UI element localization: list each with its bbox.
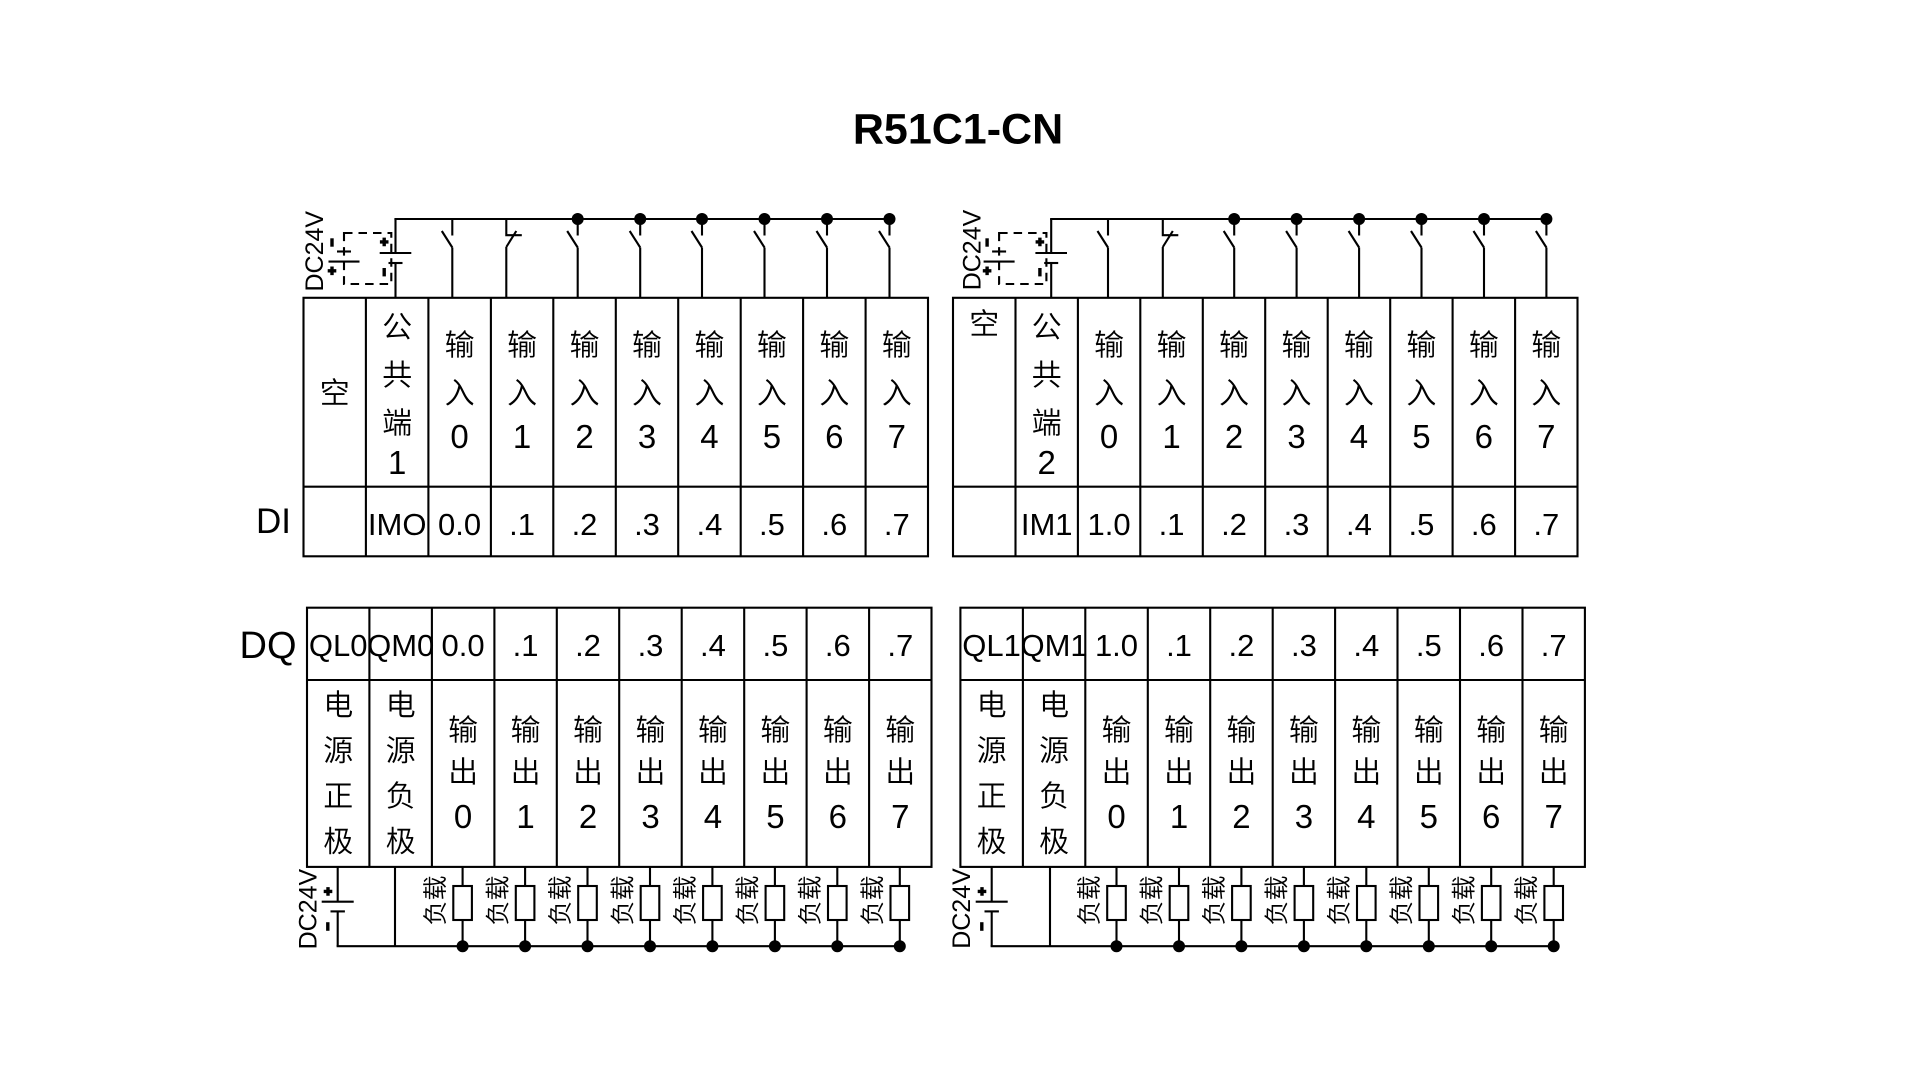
svg-text:6: 6 bbox=[825, 418, 843, 455]
svg-text:0.0: 0.0 bbox=[442, 628, 485, 663]
svg-text:DQ: DQ bbox=[240, 625, 297, 667]
svg-text:R51C1-CN: R51C1-CN bbox=[853, 106, 1063, 154]
svg-text:1.0: 1.0 bbox=[1088, 507, 1131, 542]
svg-text:3: 3 bbox=[1295, 798, 1313, 835]
svg-text:4: 4 bbox=[700, 418, 718, 455]
svg-text:.4: .4 bbox=[696, 507, 722, 542]
svg-text:3: 3 bbox=[1287, 418, 1305, 455]
svg-text:1: 1 bbox=[388, 444, 406, 481]
svg-text:DC24V: DC24V bbox=[959, 209, 987, 290]
svg-text:6: 6 bbox=[829, 798, 847, 835]
svg-text:QL0: QL0 bbox=[309, 628, 368, 663]
svg-text:7: 7 bbox=[891, 798, 909, 835]
svg-text:4: 4 bbox=[1357, 798, 1375, 835]
svg-text:0: 0 bbox=[450, 418, 468, 455]
svg-text:.7: .7 bbox=[1533, 507, 1559, 542]
svg-text:DC24V: DC24V bbox=[301, 211, 329, 292]
svg-text:DC24V: DC24V bbox=[294, 868, 322, 949]
svg-text:.6: .6 bbox=[1478, 628, 1504, 663]
svg-text:.4: .4 bbox=[1353, 628, 1379, 663]
svg-text:QM0: QM0 bbox=[367, 628, 434, 663]
svg-text:.5: .5 bbox=[1408, 507, 1434, 542]
svg-text:1: 1 bbox=[1162, 418, 1180, 455]
svg-text:5: 5 bbox=[766, 798, 784, 835]
svg-text:2: 2 bbox=[1225, 418, 1243, 455]
svg-text:.7: .7 bbox=[884, 507, 910, 542]
svg-text:7: 7 bbox=[1545, 798, 1563, 835]
svg-text:.7: .7 bbox=[887, 628, 913, 663]
svg-text:.5: .5 bbox=[759, 507, 785, 542]
svg-text:.2: .2 bbox=[1228, 628, 1254, 663]
svg-text:IM1: IM1 bbox=[1021, 507, 1073, 542]
svg-text:.2: .2 bbox=[572, 507, 598, 542]
svg-text:.1: .1 bbox=[1159, 507, 1185, 542]
svg-text:2: 2 bbox=[1038, 444, 1056, 481]
svg-text:.4: .4 bbox=[700, 628, 726, 663]
svg-text:.2: .2 bbox=[575, 628, 601, 663]
svg-text:.5: .5 bbox=[1416, 628, 1442, 663]
svg-text:1: 1 bbox=[1170, 798, 1188, 835]
svg-text:5: 5 bbox=[1420, 798, 1438, 835]
svg-text:4: 4 bbox=[1350, 418, 1368, 455]
svg-text:.1: .1 bbox=[1166, 628, 1192, 663]
svg-text:6: 6 bbox=[1482, 798, 1500, 835]
svg-text:2: 2 bbox=[579, 798, 597, 835]
svg-text:1: 1 bbox=[516, 798, 534, 835]
svg-text:QL1: QL1 bbox=[962, 628, 1021, 663]
svg-text:7: 7 bbox=[888, 418, 906, 455]
svg-text:0.0: 0.0 bbox=[438, 507, 481, 542]
svg-text:2: 2 bbox=[1232, 798, 1250, 835]
svg-text:.6: .6 bbox=[1471, 507, 1497, 542]
svg-text:3: 3 bbox=[641, 798, 659, 835]
svg-text:1.0: 1.0 bbox=[1095, 628, 1138, 663]
svg-text:QM1: QM1 bbox=[1021, 628, 1088, 663]
svg-text:0: 0 bbox=[1100, 418, 1118, 455]
svg-text:5: 5 bbox=[763, 418, 781, 455]
svg-text:0: 0 bbox=[1107, 798, 1125, 835]
svg-text:5: 5 bbox=[1412, 418, 1430, 455]
svg-text:.6: .6 bbox=[825, 628, 851, 663]
svg-text:3: 3 bbox=[638, 418, 656, 455]
svg-text:7: 7 bbox=[1537, 418, 1555, 455]
svg-text:DC24V: DC24V bbox=[948, 868, 976, 949]
svg-text:.5: .5 bbox=[762, 628, 788, 663]
svg-text:1: 1 bbox=[513, 418, 531, 455]
svg-text:.2: .2 bbox=[1221, 507, 1247, 542]
svg-text:2: 2 bbox=[575, 418, 593, 455]
svg-text:.7: .7 bbox=[1541, 628, 1567, 663]
svg-text:.3: .3 bbox=[1291, 628, 1317, 663]
svg-text:6: 6 bbox=[1475, 418, 1493, 455]
svg-text:.3: .3 bbox=[1284, 507, 1310, 542]
svg-text:.6: .6 bbox=[821, 507, 847, 542]
svg-text:.4: .4 bbox=[1346, 507, 1372, 542]
svg-text:.3: .3 bbox=[634, 507, 660, 542]
svg-text:.3: .3 bbox=[638, 628, 664, 663]
svg-text:DI: DI bbox=[256, 502, 291, 541]
svg-text:.1: .1 bbox=[509, 507, 535, 542]
svg-text:.1: .1 bbox=[513, 628, 539, 663]
svg-text:IMO: IMO bbox=[368, 507, 427, 542]
svg-text:0: 0 bbox=[454, 798, 472, 835]
svg-text:4: 4 bbox=[704, 798, 722, 835]
